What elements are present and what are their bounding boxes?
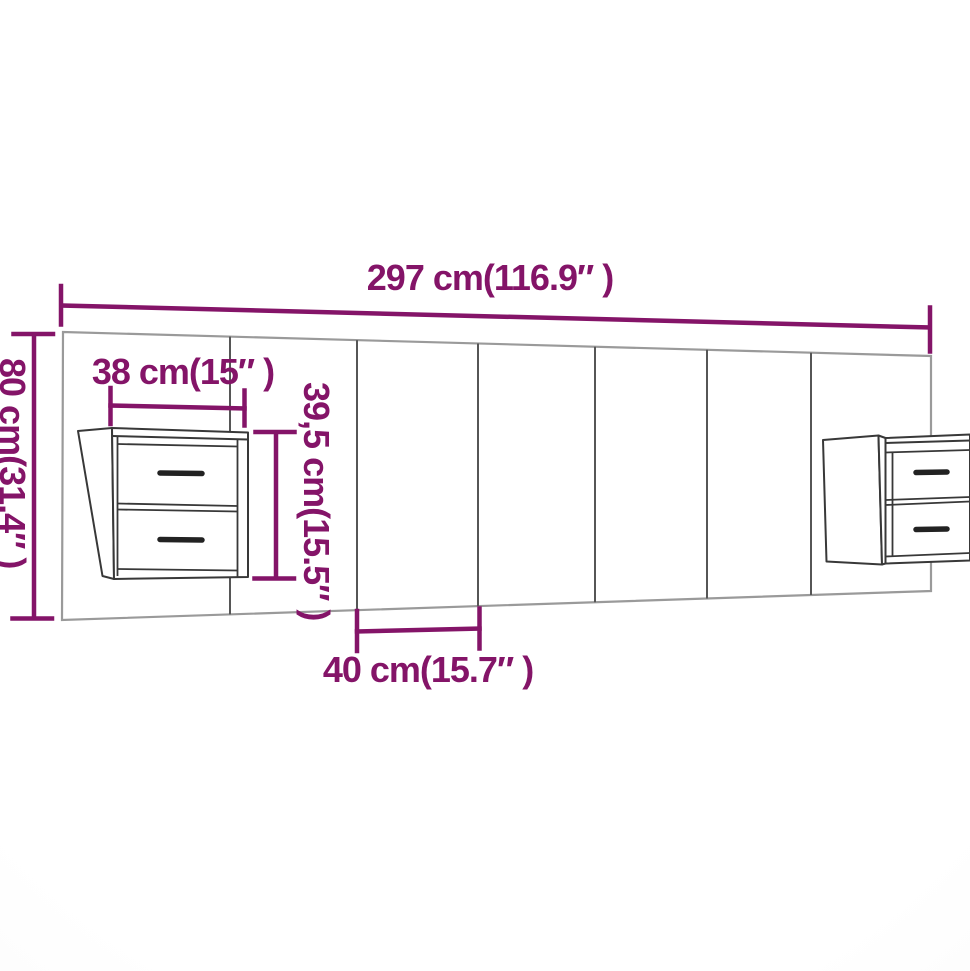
- left-nightstand-side-panel: [78, 428, 114, 579]
- dim-cabinet-height-line: [255, 432, 295, 579]
- diagram-linework: [0, 0, 970, 971]
- dim-height-label: 80 cm(31.4″ ): [0, 358, 33, 568]
- dim-panel-width-line: [357, 609, 480, 652]
- left-nightstand: [78, 428, 248, 579]
- drawer-handle: [916, 529, 947, 530]
- dim-cabinet-height-label: 39,5 cm(15.5″ ): [295, 382, 337, 620]
- drawer-handle: [160, 540, 202, 541]
- dim-panel-width-label: 40 cm(15.7″ ): [303, 649, 553, 691]
- dim-total-width-label: 297 cm(116.9″ ): [340, 257, 640, 299]
- right-nightstand-side-panel: [823, 436, 882, 565]
- dim-cabinet-width-line: [111, 388, 245, 426]
- right-nightstand: [823, 435, 970, 565]
- drawer-handle: [160, 473, 202, 474]
- drawer-handle: [916, 472, 947, 473]
- dim-cabinet-width-label: 38 cm(15″ ): [58, 351, 308, 393]
- product-dimension-diagram: 297 cm(116.9″ ) 80 cm(31.4″ ) 38 cm(15″ …: [0, 0, 970, 971]
